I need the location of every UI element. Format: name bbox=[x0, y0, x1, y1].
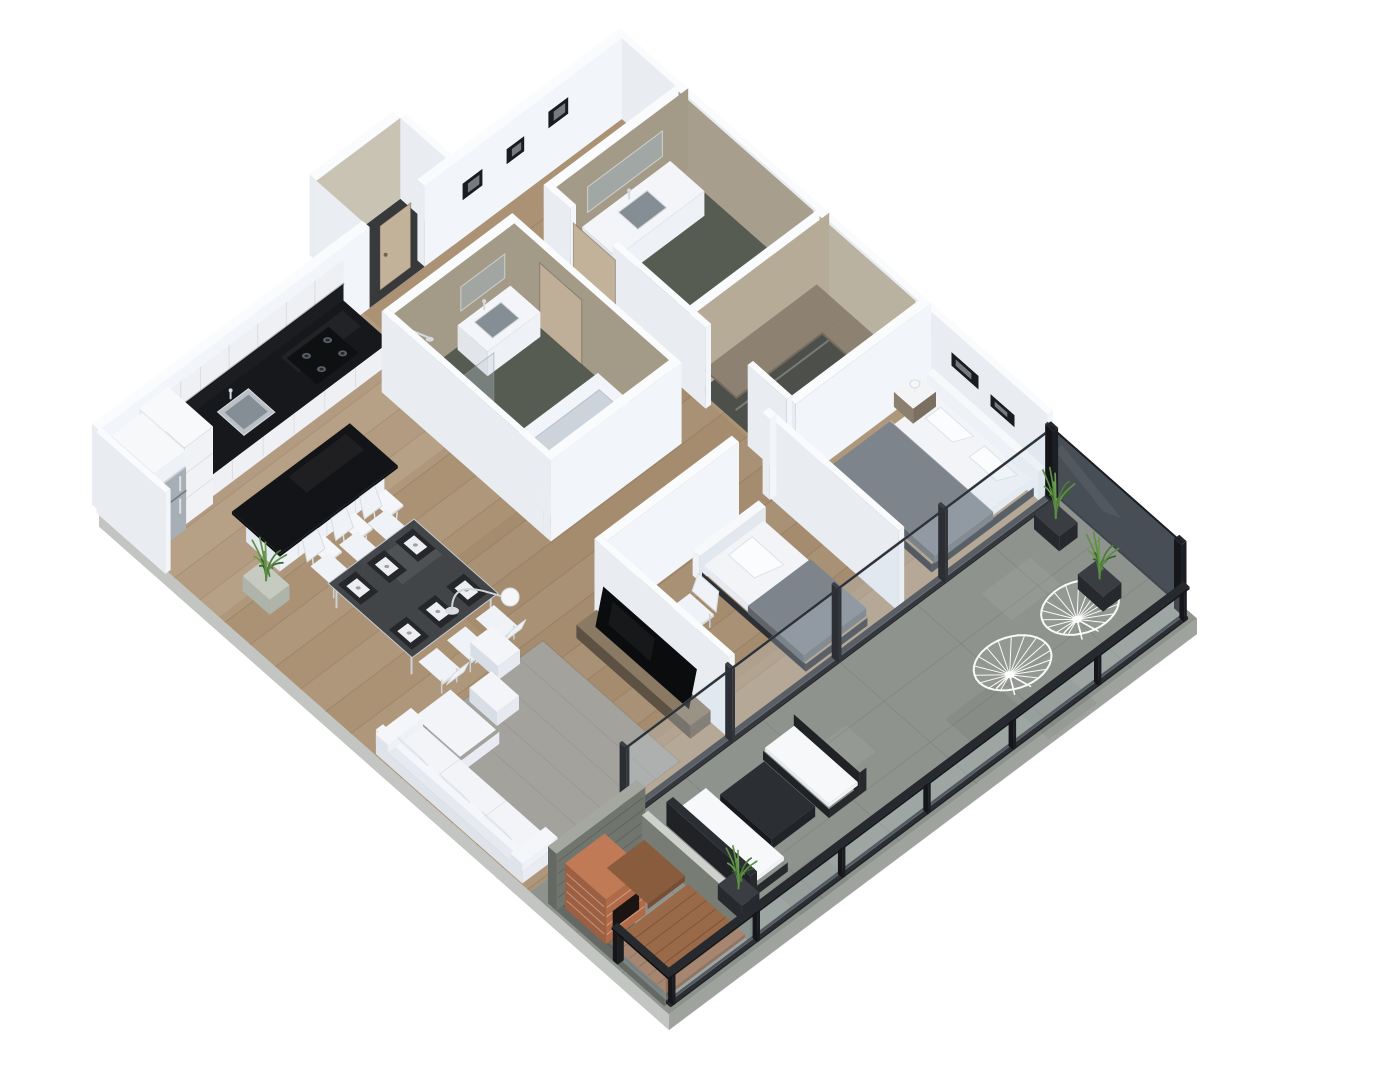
isometric-floor-plan bbox=[0, 0, 1376, 1080]
floor-plan-figure bbox=[0, 0, 1376, 1080]
page bbox=[0, 0, 1376, 1080]
